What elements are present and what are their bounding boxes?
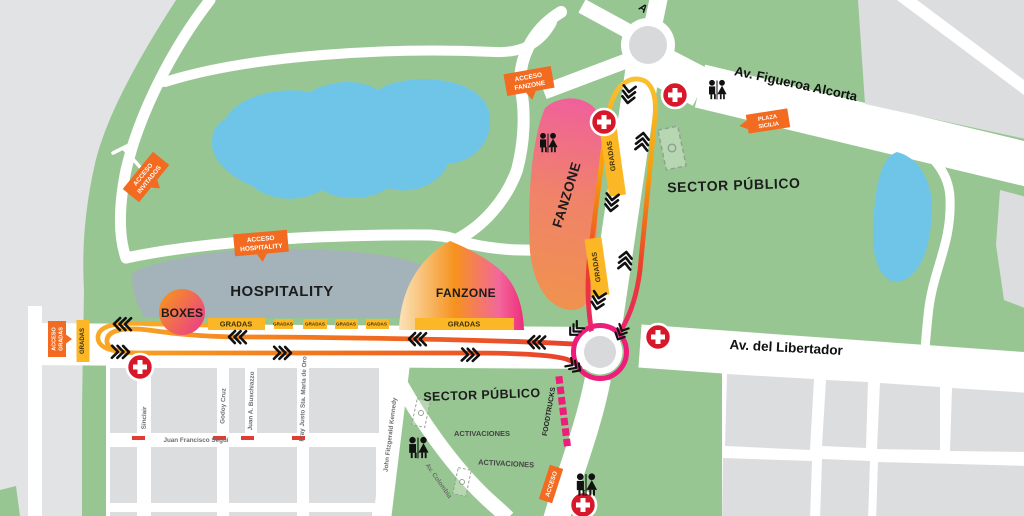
city-block bbox=[229, 447, 297, 503]
foodtruck-dash bbox=[563, 438, 571, 446]
map-canvas: GRADAS GRADAS GRADAS GRADAS GRADAS GRADA… bbox=[0, 0, 1024, 516]
blocks-southeast bbox=[722, 370, 1024, 516]
city-block bbox=[229, 512, 297, 516]
foodtruck-dash bbox=[558, 397, 566, 405]
city-block bbox=[151, 368, 217, 433]
city-block bbox=[877, 383, 940, 450]
medical-icon bbox=[127, 354, 153, 380]
activaciones-label: ACTIVACIONES bbox=[454, 429, 510, 438]
foodtruck-dash bbox=[561, 418, 569, 426]
hospitality-label: HOSPITALITY bbox=[230, 283, 334, 300]
city-block bbox=[151, 447, 217, 503]
city-block bbox=[229, 368, 245, 433]
foodtruck-dash bbox=[557, 386, 565, 394]
city-block bbox=[309, 368, 379, 433]
city-block bbox=[725, 374, 814, 450]
blocks-southwest bbox=[106, 356, 411, 516]
circuit-map: GRADAS GRADAS GRADAS GRADAS GRADAS GRADA… bbox=[0, 0, 1024, 516]
street-label-segui: Juan Francisco Seguí bbox=[163, 437, 228, 444]
city-block bbox=[820, 459, 870, 516]
city-block bbox=[110, 512, 137, 516]
street-label-godoy-cruz: Godoy Cruz bbox=[219, 388, 227, 424]
gradas-label: GRADAS bbox=[336, 322, 356, 327]
roundabout-south-island bbox=[584, 336, 616, 368]
fanzone-lower-label: FANZONE bbox=[436, 286, 496, 300]
closure-dash bbox=[241, 436, 254, 440]
city-block bbox=[876, 462, 1024, 516]
gradas-label: GRADAS bbox=[273, 322, 293, 327]
city-block bbox=[950, 388, 1024, 452]
gradas-label: GRADAS bbox=[448, 320, 481, 329]
city-block bbox=[309, 512, 372, 516]
tag-label: ACCESO bbox=[52, 327, 58, 351]
tag-label: GRADAS bbox=[59, 327, 65, 351]
medical-icon bbox=[591, 109, 617, 135]
gradas-label: GRADAS bbox=[80, 328, 86, 354]
foodtruck-dash bbox=[562, 428, 570, 436]
city-block bbox=[309, 447, 376, 503]
roundabout-north-island bbox=[629, 26, 667, 64]
gradas-label: GRADAS bbox=[305, 322, 325, 327]
medical-icon bbox=[662, 82, 688, 108]
foodtruck-dash bbox=[559, 407, 567, 415]
medical-icon bbox=[570, 492, 596, 516]
city-block bbox=[151, 512, 217, 516]
city-block bbox=[822, 380, 868, 448]
foodtruck-dash bbox=[555, 376, 563, 384]
city-block bbox=[110, 447, 137, 503]
city-block bbox=[257, 368, 297, 433]
closure-dash bbox=[132, 436, 145, 440]
boxes-label: BOXES bbox=[161, 306, 203, 320]
city-block bbox=[722, 458, 812, 516]
gradas-label: GRADAS bbox=[367, 322, 387, 327]
street-label-sinclair: Sinclair bbox=[141, 406, 149, 430]
medical-icon bbox=[645, 324, 671, 350]
gradas-label: GRADAS bbox=[220, 320, 253, 329]
city-left-strip bbox=[43, 372, 82, 516]
